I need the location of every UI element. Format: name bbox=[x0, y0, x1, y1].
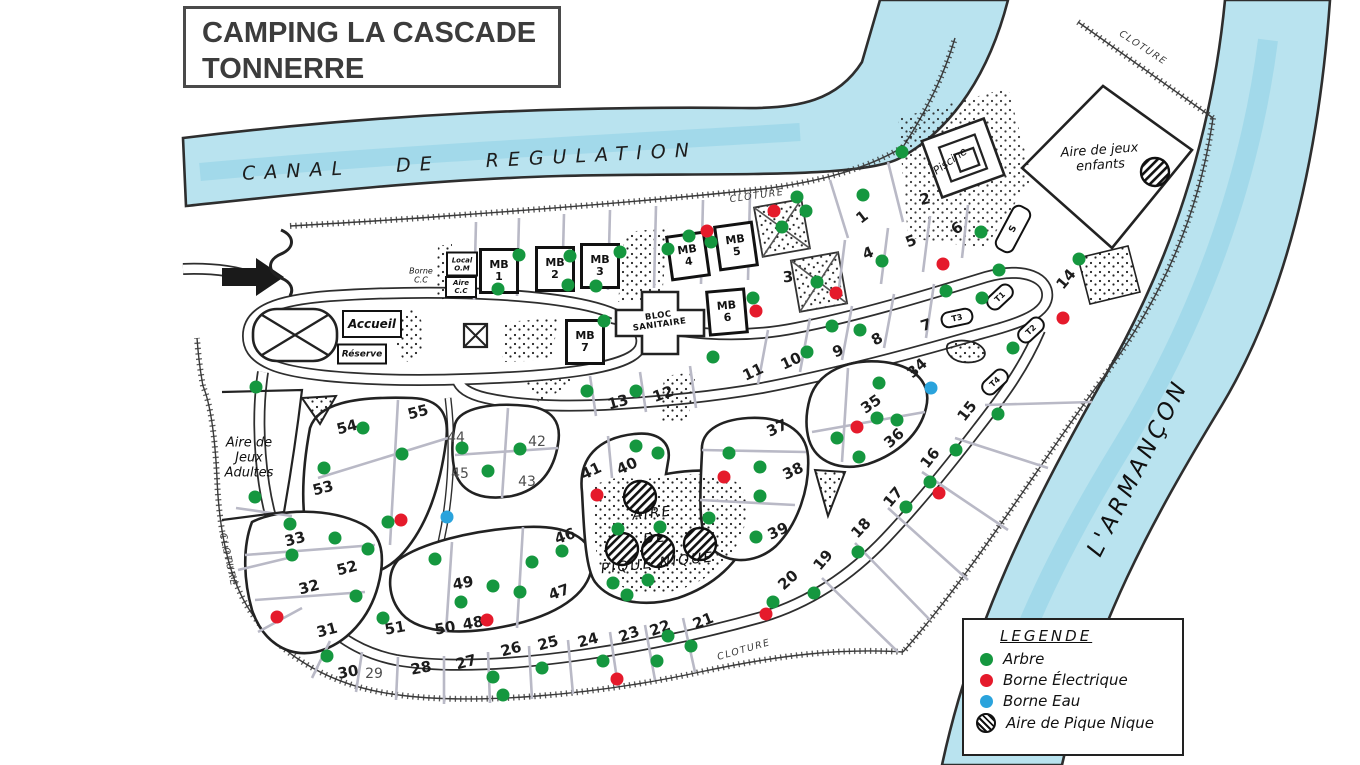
tree-marker bbox=[747, 292, 760, 305]
tree-marker bbox=[590, 280, 603, 293]
tree-marker bbox=[382, 516, 395, 529]
tree-marker bbox=[1007, 342, 1020, 355]
tree-marker bbox=[826, 320, 839, 333]
tree-marker bbox=[852, 546, 865, 559]
tree-marker bbox=[801, 346, 814, 359]
tree-marker bbox=[318, 462, 331, 475]
pitch-number-52: 52 bbox=[335, 557, 360, 580]
tree-marker bbox=[950, 444, 963, 457]
tree-marker bbox=[250, 381, 263, 394]
sanitary-block-label: BLOC SANITAIRE bbox=[631, 308, 687, 333]
tree-marker bbox=[514, 586, 527, 599]
pitch-number-4: 4 bbox=[860, 243, 876, 264]
tree-marker bbox=[900, 501, 913, 514]
tree-marker bbox=[683, 230, 696, 243]
pitch-number-36: 36 bbox=[880, 424, 908, 451]
tree-marker bbox=[857, 189, 870, 202]
tree-marker bbox=[562, 279, 575, 292]
building-s: S bbox=[992, 202, 1034, 256]
campground-map: CANAL DE REGULATIONL'ARMANÇONCLOTURECLOT… bbox=[0, 0, 1360, 765]
tree-marker bbox=[492, 283, 505, 296]
water-marker bbox=[441, 511, 454, 524]
tree-marker bbox=[526, 556, 539, 569]
tree-marker bbox=[630, 440, 643, 453]
legend-item-label: Aire de Pique Nique bbox=[1006, 714, 1154, 732]
tree-icon bbox=[980, 653, 993, 666]
tree-marker bbox=[854, 324, 867, 337]
pitch-number-14: 14 bbox=[1052, 265, 1079, 293]
pitch-number-1: 1 bbox=[852, 207, 871, 228]
pitch-number-26: 26 bbox=[499, 638, 524, 661]
tree-marker bbox=[754, 490, 767, 503]
pitch-number-41: 41 bbox=[578, 458, 605, 483]
electric-marker bbox=[611, 673, 624, 686]
tree-marker bbox=[651, 655, 664, 668]
tree-marker bbox=[621, 589, 634, 602]
tree-marker bbox=[976, 292, 989, 305]
mobile-home-5: MB 5 bbox=[713, 220, 759, 271]
fence-label-top: CLOTURE bbox=[729, 187, 785, 206]
electric-marker bbox=[760, 608, 773, 621]
legend-item-picnic: Aire de Pique Nique bbox=[976, 713, 1170, 733]
tree-marker bbox=[993, 264, 1006, 277]
pitch-number-21: 21 bbox=[690, 609, 716, 634]
pitch-number-7: 7 bbox=[918, 315, 933, 335]
pitch-number-16: 16 bbox=[916, 444, 943, 472]
tree-marker bbox=[876, 255, 889, 268]
electric-icon bbox=[980, 674, 993, 687]
electric-marker bbox=[750, 305, 763, 318]
tree-marker bbox=[482, 465, 495, 478]
pitch-number-39: 39 bbox=[765, 518, 792, 543]
tree-marker bbox=[831, 432, 844, 445]
tree-marker bbox=[612, 523, 625, 536]
tree-marker bbox=[429, 553, 442, 566]
tree-marker bbox=[487, 671, 500, 684]
pitch-number-3: 3 bbox=[782, 268, 794, 287]
tree-marker bbox=[487, 580, 500, 593]
tree-marker bbox=[536, 662, 549, 675]
pitch-number-13: 13 bbox=[606, 391, 631, 414]
pitch-number-42: 42 bbox=[528, 434, 546, 450]
map-title-line2: TONNERRE bbox=[202, 51, 558, 87]
pitch-number-38: 38 bbox=[780, 458, 807, 483]
pitch-number-37: 37 bbox=[764, 415, 791, 440]
pitch-number-53: 53 bbox=[311, 477, 336, 500]
tree-marker bbox=[811, 276, 824, 289]
tree-marker bbox=[654, 521, 667, 534]
adult-playground-label: Aire de Jeux Adultes bbox=[225, 436, 274, 481]
pitch-number-9: 9 bbox=[830, 341, 846, 362]
tree-marker bbox=[685, 640, 698, 653]
tree-marker bbox=[564, 250, 577, 263]
tree-marker bbox=[321, 650, 334, 663]
map-title-line1: CAMPING LA CASCADE bbox=[202, 15, 558, 51]
electric-marker bbox=[591, 489, 604, 502]
tree-marker bbox=[767, 596, 780, 609]
pitch-number-30: 30 bbox=[336, 661, 360, 682]
tree-marker bbox=[791, 191, 804, 204]
tree-marker bbox=[750, 531, 763, 544]
pitch-number-31: 31 bbox=[315, 619, 340, 642]
electric-marker bbox=[271, 611, 284, 624]
local-om: Local O.M bbox=[446, 252, 478, 277]
pitch-number-43: 43 bbox=[518, 474, 536, 490]
picnic-area-label: AIRE DE PIQUE NIQUE bbox=[594, 496, 715, 582]
electric-marker bbox=[851, 421, 864, 434]
electric-marker bbox=[937, 258, 950, 271]
borne-cc-label: Borne C.C bbox=[409, 268, 433, 285]
pitch-number-25: 25 bbox=[536, 632, 561, 655]
tree-marker bbox=[630, 385, 643, 398]
tree-marker bbox=[456, 442, 469, 455]
tent-t3: T3 bbox=[939, 306, 975, 329]
pitch-number-19: 19 bbox=[809, 546, 836, 574]
pitch-number-18: 18 bbox=[847, 514, 874, 542]
tree-marker bbox=[873, 377, 886, 390]
legend-item-water: Borne Eau bbox=[976, 692, 1170, 710]
tree-marker bbox=[286, 549, 299, 562]
tree-marker bbox=[497, 689, 510, 702]
electric-marker bbox=[481, 614, 494, 627]
map-title: CAMPING LA CASCADE TONNERRE bbox=[183, 6, 561, 88]
tree-marker bbox=[581, 385, 594, 398]
tree-marker bbox=[597, 655, 610, 668]
electric-marker bbox=[933, 487, 946, 500]
tree-marker bbox=[896, 146, 909, 159]
legend-item-electric: Borne Électrique bbox=[976, 671, 1170, 689]
tree-marker bbox=[975, 226, 988, 239]
tree-marker bbox=[642, 574, 655, 587]
kids-playground-label: Aire de jeux enfants bbox=[1060, 140, 1140, 175]
tree-marker bbox=[556, 545, 569, 558]
electric-marker bbox=[395, 514, 408, 527]
tree-marker bbox=[514, 443, 527, 456]
pitch-number-50: 50 bbox=[433, 617, 457, 638]
tent-t4: T4 bbox=[978, 365, 1012, 399]
tree-marker bbox=[350, 590, 363, 603]
picnic-area-icon bbox=[976, 713, 996, 733]
pitch-number-24: 24 bbox=[576, 629, 601, 652]
tree-marker bbox=[357, 422, 370, 435]
tree-marker bbox=[377, 612, 390, 625]
tree-marker bbox=[776, 221, 789, 234]
pitch-number-47: 47 bbox=[546, 580, 572, 604]
water-marker bbox=[925, 382, 938, 395]
tree-marker bbox=[662, 243, 675, 256]
fence-label-topright: CLOTURE bbox=[1117, 28, 1169, 67]
fence-label-bottom: CLOTURE bbox=[716, 637, 772, 663]
tree-marker bbox=[940, 285, 953, 298]
pitch-number-6: 6 bbox=[948, 218, 967, 239]
canal-label: CANAL DE REGULATION bbox=[242, 139, 699, 185]
river-label: L'ARMANÇON bbox=[1082, 375, 1194, 561]
tree-marker bbox=[707, 351, 720, 364]
tree-marker bbox=[329, 532, 342, 545]
pitch-number-55: 55 bbox=[406, 401, 431, 424]
pitch-number-12: 12 bbox=[650, 382, 676, 406]
pitch-number-11: 11 bbox=[740, 359, 767, 384]
legend-item-tree: Arbre bbox=[976, 650, 1170, 668]
water-icon bbox=[980, 695, 993, 708]
tree-marker bbox=[652, 447, 665, 460]
tree-marker bbox=[723, 447, 736, 460]
electric-marker bbox=[718, 471, 731, 484]
aire-cc: Aire C.C bbox=[445, 276, 477, 298]
fence-label-left: CLOTURE bbox=[217, 532, 239, 588]
pitch-number-29: 29 bbox=[365, 666, 383, 682]
tree-marker bbox=[871, 412, 884, 425]
pool-label: Piscine bbox=[931, 145, 970, 178]
tree-marker bbox=[396, 448, 409, 461]
tree-marker bbox=[1073, 253, 1086, 266]
tree-marker bbox=[614, 246, 627, 259]
pitch-number-5: 5 bbox=[903, 231, 919, 252]
legend-item-label: Borne Électrique bbox=[1003, 671, 1128, 689]
tent-t2: T2 bbox=[1014, 313, 1048, 347]
tree-marker bbox=[754, 461, 767, 474]
legend: LEGENDE ArbreBorne ÉlectriqueBorne EauAi… bbox=[962, 618, 1184, 756]
pitch-number-23: 23 bbox=[616, 622, 642, 646]
pitch-number-15: 15 bbox=[953, 397, 980, 425]
tree-marker bbox=[703, 512, 716, 525]
tree-marker bbox=[808, 587, 821, 600]
pitch-number-32: 32 bbox=[297, 576, 322, 599]
pitch-number-34: 34 bbox=[903, 354, 931, 381]
electric-marker bbox=[768, 205, 781, 218]
pitch-number-8: 8 bbox=[868, 329, 886, 350]
reception: Accueil bbox=[342, 310, 402, 338]
reserve: Réserve bbox=[337, 344, 387, 365]
tree-marker bbox=[853, 451, 866, 464]
mobile-home-6: MB 6 bbox=[705, 287, 749, 336]
electric-marker bbox=[830, 287, 843, 300]
tree-marker bbox=[800, 205, 813, 218]
electric-marker bbox=[1057, 312, 1070, 325]
pitch-number-45: 45 bbox=[451, 466, 469, 482]
electric-marker bbox=[701, 225, 714, 238]
legend-item-label: Arbre bbox=[1003, 650, 1044, 668]
tree-marker bbox=[455, 596, 468, 609]
legend-items: ArbreBorne ÉlectriqueBorne EauAire de Pi… bbox=[976, 650, 1170, 733]
tree-marker bbox=[513, 249, 526, 262]
pitch-number-49: 49 bbox=[451, 572, 475, 593]
pitch-number-28: 28 bbox=[409, 657, 433, 678]
tree-marker bbox=[362, 543, 375, 556]
tree-marker bbox=[249, 491, 262, 504]
tree-marker bbox=[598, 315, 611, 328]
legend-item-label: Borne Eau bbox=[1003, 692, 1080, 710]
tree-marker bbox=[891, 414, 904, 427]
tree-marker bbox=[607, 577, 620, 590]
pitch-number-20: 20 bbox=[774, 566, 802, 593]
legend-title: LEGENDE bbox=[1000, 627, 1170, 645]
pitch-number-40: 40 bbox=[614, 453, 641, 478]
tree-marker bbox=[662, 630, 675, 643]
pitch-number-27: 27 bbox=[454, 651, 479, 674]
pitch-number-33: 33 bbox=[283, 528, 308, 551]
pitch-number-2: 2 bbox=[918, 189, 932, 209]
tree-marker bbox=[284, 518, 297, 531]
tree-marker bbox=[992, 408, 1005, 421]
